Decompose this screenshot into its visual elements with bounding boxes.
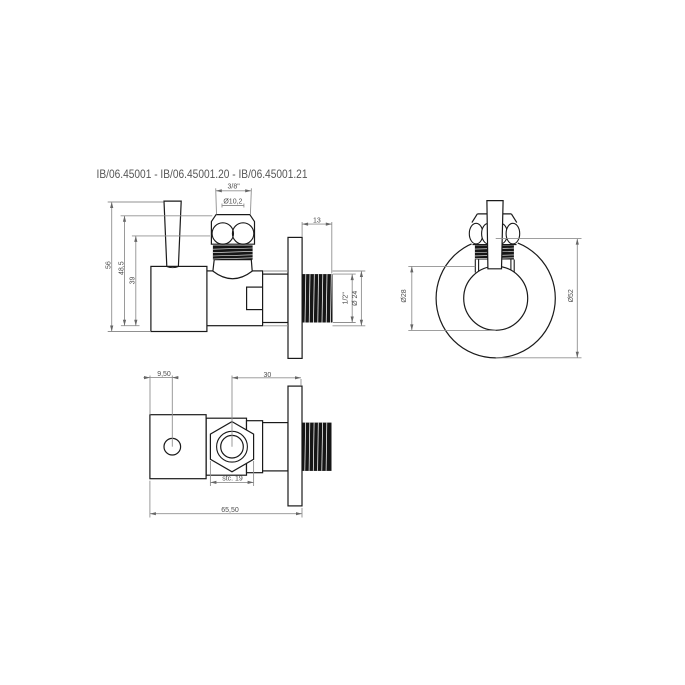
svg-text:Ø52: Ø52 (568, 289, 575, 302)
svg-text:56: 56 (106, 261, 113, 269)
svg-text:Ø10,2: Ø10,2 (223, 199, 242, 206)
svg-text:48,5: 48,5 (119, 261, 126, 275)
svg-text:3/8": 3/8" (227, 184, 240, 191)
svg-text:65,50: 65,50 (221, 507, 239, 514)
svg-text:30: 30 (264, 372, 272, 379)
svg-text:1/2": 1/2" (342, 292, 349, 305)
svg-text:9,50: 9,50 (157, 371, 171, 378)
svg-text:Ø 24: Ø 24 (352, 291, 359, 306)
svg-text:stc. 19: stc. 19 (222, 476, 243, 483)
svg-text:39: 39 (130, 277, 137, 285)
svg-text:13: 13 (313, 217, 321, 224)
svg-text:IB/06.45001 - IB/06.45001.20 -: IB/06.45001 - IB/06.45001.20 - IB/06.450… (97, 167, 308, 181)
svg-text:Ø28: Ø28 (401, 289, 408, 302)
